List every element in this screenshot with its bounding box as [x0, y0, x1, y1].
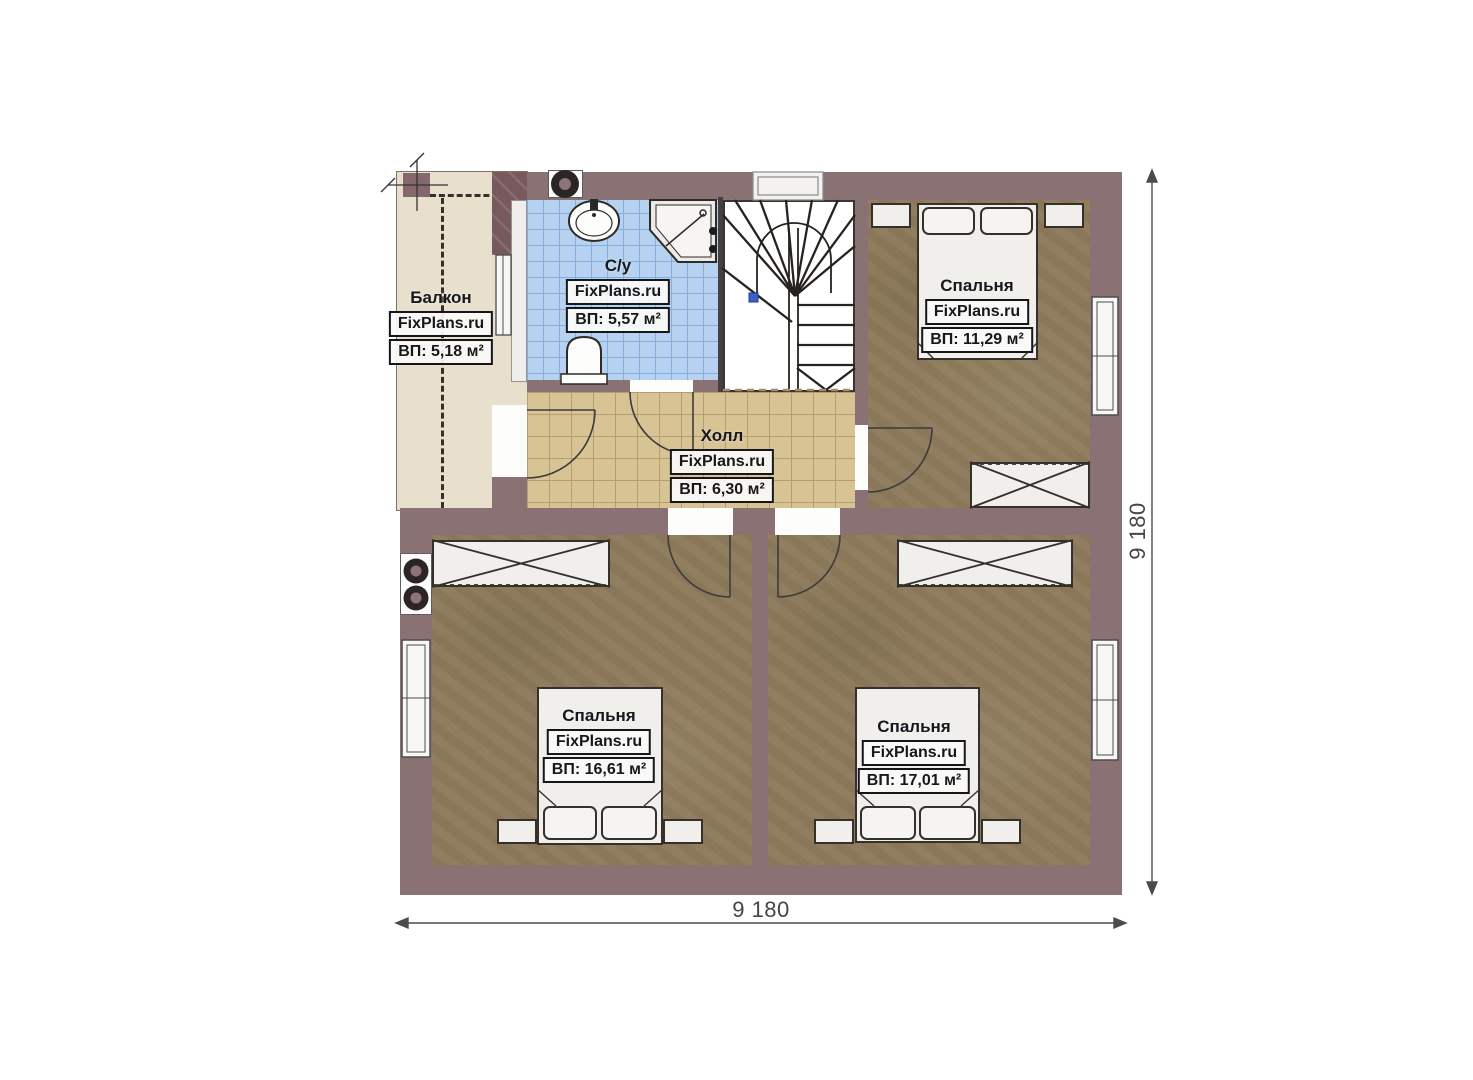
- room-brand-box: FixPlans.ru: [547, 729, 651, 755]
- wall-bedroom-divider: [752, 535, 768, 865]
- room-brand-box: FixPlans.ru: [670, 449, 774, 475]
- door-opening-bedroom-top-right: [855, 425, 868, 490]
- room-label-hall: Холл FixPlans.ru ВП: 6,30 м²: [670, 426, 774, 503]
- nightstand: [497, 819, 537, 844]
- room-name: Спальня: [940, 276, 1013, 296]
- room-name: С/у: [605, 256, 631, 276]
- wall-bathroom-stairs-thin: [718, 197, 723, 392]
- corner-column: [403, 173, 430, 197]
- vent-block-top: [548, 170, 583, 198]
- room-area-box: ВП: 5,57 м²: [566, 307, 670, 333]
- room-area-box: ВП: 11,29 м²: [921, 327, 1033, 353]
- room-label-bathroom: С/у FixPlans.ru ВП: 5,57 м²: [566, 256, 670, 333]
- pillow: [860, 806, 916, 840]
- room-label-bedroom-bottom-left: Спальня FixPlans.ru ВП: 16,61 м²: [543, 706, 655, 783]
- nightstand: [871, 203, 911, 228]
- pillow: [919, 806, 976, 840]
- wardrobe-bottom-left: [432, 540, 610, 587]
- pillow: [980, 207, 1033, 235]
- room-label-bedroom-top-right: Спальня FixPlans.ru ВП: 11,29 м²: [921, 276, 1033, 353]
- door-opening-balcony: [492, 405, 527, 477]
- wardrobe-top-right: [970, 462, 1090, 508]
- pillow: [543, 806, 597, 840]
- room-name: Балкон: [410, 288, 471, 308]
- room-brand-box: FixPlans.ru: [862, 740, 966, 766]
- door-opening-bedroom-bottom-left: [668, 508, 733, 535]
- nightstand: [1044, 203, 1084, 228]
- room-brand-box: FixPlans.ru: [389, 311, 493, 337]
- nightstand: [981, 819, 1021, 844]
- room-area-box: ВП: 17,01 м²: [858, 768, 970, 794]
- room-area-box: ВП: 6,30 м²: [670, 477, 774, 503]
- wall-hall-bathroom-a: [527, 380, 630, 392]
- room-brand-box: FixPlans.ru: [925, 299, 1029, 325]
- floor-plan: Балкон FixPlans.ru ВП: 5,18 м² С/у FixPl…: [0, 0, 1473, 1080]
- pillow: [922, 207, 975, 235]
- room-brand-box: FixPlans.ru: [566, 279, 670, 305]
- vent-block-left: [400, 553, 432, 615]
- dimension-label-bottom: 9 180: [701, 897, 821, 923]
- wall-below-balcony-door: [492, 477, 527, 510]
- room-area-box: ВП: 5,18 м²: [389, 339, 493, 365]
- wall-bottom: [400, 865, 1122, 895]
- wall-middle-horizontal: [400, 508, 1090, 535]
- room-name: Спальня: [562, 706, 635, 726]
- nightstand: [814, 819, 854, 844]
- nightstand: [663, 819, 703, 844]
- door-opening-bathroom: [630, 380, 693, 392]
- room-area-box: ВП: 16,61 м²: [543, 757, 655, 783]
- door-opening-bedroom-bottom-right: [775, 508, 840, 535]
- wall-top: [495, 172, 1122, 200]
- dimension-label-right: 9 180: [1125, 471, 1151, 591]
- wall-stairs-bedroom-upper: [855, 172, 868, 425]
- room-label-bedroom-bottom-right: Спальня FixPlans.ru ВП: 17,01 м²: [858, 717, 970, 794]
- staircase-area: [723, 200, 855, 392]
- wardrobe-bottom-right: [897, 540, 1073, 587]
- bathroom-left-niche: [511, 200, 527, 382]
- room-name: Спальня: [877, 717, 950, 737]
- pillow: [601, 806, 657, 840]
- room-name: Холл: [701, 426, 744, 446]
- wall-stairs-bedroom-lower: [855, 490, 868, 508]
- room-label-balcony: Балкон FixPlans.ru ВП: 5,18 м²: [389, 288, 493, 365]
- wall-right: [1090, 172, 1122, 895]
